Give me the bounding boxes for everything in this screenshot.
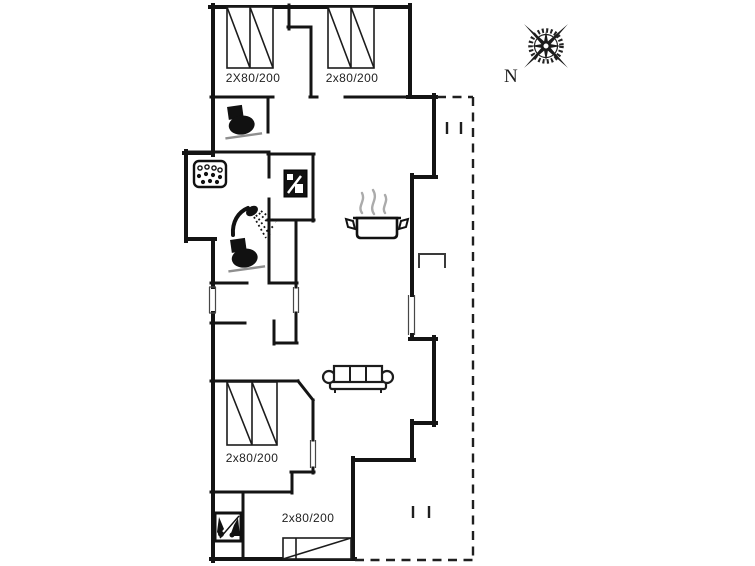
- cooking-pot-icon: [346, 190, 408, 238]
- bed-middle: [227, 382, 277, 445]
- sauna-icon: [215, 513, 241, 541]
- whirlpool-icon: [194, 161, 226, 187]
- wc-icon: [224, 236, 265, 272]
- bed-size-label-top-left: 2X80/200: [208, 71, 298, 85]
- bed-size-label-top-right: 2x80/200: [307, 71, 397, 85]
- sofa-icon: [323, 366, 393, 393]
- steam: [360, 190, 386, 214]
- step-icon: [419, 254, 445, 268]
- bed-top-left: [227, 7, 273, 68]
- bed-size-label-bottom: 2x80/200: [263, 511, 353, 525]
- floor-plan: 2X80/200 2x80/200 2x80/200 2x80/200 N: [0, 0, 755, 566]
- wc-icon: [221, 103, 262, 139]
- interior-walls: [186, 5, 410, 558]
- north-label: N: [504, 66, 518, 88]
- bed-bottom: [283, 538, 351, 559]
- compass-rose-icon: [524, 24, 568, 68]
- bed-top-right: [328, 7, 374, 68]
- washing-machine-icon: [284, 170, 307, 197]
- bed-size-label-middle: 2x80/200: [207, 451, 297, 465]
